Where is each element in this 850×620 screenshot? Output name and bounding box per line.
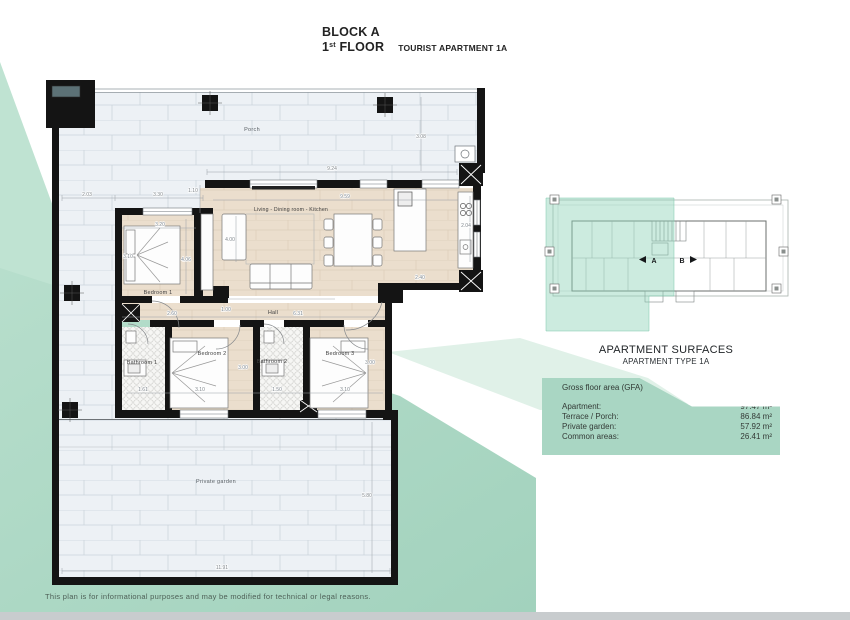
floor-ordinal-sup: st xyxy=(329,42,336,49)
page: 2.03 3.30 1.10 9.24 9.59 3.08 3.20 4.06 … xyxy=(0,0,850,620)
label-hall: Hall xyxy=(268,310,278,316)
porch-edge-line xyxy=(95,89,481,93)
dim-hall-right: 6.31 xyxy=(293,311,303,317)
dim-bed3-w: 3.10 xyxy=(340,387,350,393)
block-title: BLOCK A xyxy=(322,26,384,39)
dim-bath2-w: 1.50 xyxy=(272,387,282,393)
label-bedroom1: Bedroom 1 xyxy=(144,290,173,296)
dim-bed1-bed: 3.10 xyxy=(123,254,133,260)
floor-title: 1st FLOOR xyxy=(322,39,384,54)
label-porch: Porch xyxy=(244,127,260,133)
dim-bath1-w: 1.61 xyxy=(138,387,148,393)
dim-bed3-d: 3.00 xyxy=(365,360,375,366)
dim-garden-d: 5.80 xyxy=(362,493,372,499)
surface-row: Terrace / Porch: 86.84 m² xyxy=(562,412,772,422)
dim-bed2-d: 3.00 xyxy=(238,365,248,371)
stair-core-window xyxy=(52,86,80,97)
surface-label: Common areas: xyxy=(562,432,619,442)
surface-row: Private garden: 57.92 m² xyxy=(562,422,772,432)
dim-living-width: 9.59 xyxy=(340,194,350,200)
dim-bed1-depth: 4.06 xyxy=(181,257,191,263)
dining-table xyxy=(324,214,382,266)
kitchen-island xyxy=(394,189,426,251)
label-bedroom2: Bedroom 2 xyxy=(198,351,227,357)
surfaces-subtitle: APARTMENT TYPE 1A xyxy=(545,357,787,366)
wardrobe-bedroom1 xyxy=(201,214,213,290)
surface-label: Private garden: xyxy=(562,422,616,432)
apartment-title: TOURIST APARTMENT 1A xyxy=(398,43,507,53)
surface-label: Terrace / Porch: xyxy=(562,412,618,422)
dim-hall-door: 1.00 xyxy=(221,307,231,313)
dim-offset: 1.10 xyxy=(188,188,198,194)
bottom-strip xyxy=(0,612,850,620)
bed-bedroom3 xyxy=(310,338,368,408)
dim-garden-w: 11.91 xyxy=(216,565,228,571)
dim-porch-bed1: 3.30 xyxy=(153,192,163,198)
dim-bed2-w: 3.10 xyxy=(195,387,205,393)
label-bathroom2: Bathroom 2 xyxy=(257,359,287,365)
sofa xyxy=(250,264,312,289)
dim-kitchen-d: 2.04 xyxy=(461,223,471,229)
dim-porch-depth: 3.08 xyxy=(416,134,426,140)
label-bedroom3: Bedroom 3 xyxy=(326,351,355,357)
title-block: BLOCK A 1st FLOOR TOURIST APARTMENT 1A xyxy=(322,26,507,54)
surfaces-title: APARTMENT SURFACES xyxy=(545,344,787,356)
surface-value: 86.84 m² xyxy=(740,412,772,422)
surface-value: 57.92 m² xyxy=(740,422,772,432)
dim-sofa: 4.00 xyxy=(225,237,235,243)
key-plan-unit-a-label: A xyxy=(651,258,656,265)
label-living: Living - Dining room - Kitchen xyxy=(254,207,328,213)
plan-graphic: 2.03 3.30 1.10 9.24 9.59 3.08 3.20 4.06 … xyxy=(0,0,850,620)
disclaimer-text: This plan is for informational purposes … xyxy=(45,592,371,601)
key-plan: A B xyxy=(545,195,788,331)
gfa-header: Gross floor area (GFA) xyxy=(562,383,643,392)
dim-hall-left: 2.60 xyxy=(167,311,177,317)
tv-console xyxy=(252,186,315,190)
label-bathroom1: Bathroom 1 xyxy=(127,360,157,366)
surface-row: Common areas: 26.41 m² xyxy=(562,432,772,442)
dim-bed1-width: 3.20 xyxy=(155,222,165,228)
kitchen-counter xyxy=(458,192,473,268)
dim-porch-left: 2.03 xyxy=(82,192,92,198)
dim-kitchen-w: 2.40 xyxy=(415,275,425,281)
surface-label: Apartment: xyxy=(562,402,601,412)
dim-porch-width: 9.24 xyxy=(327,166,337,172)
key-plan-unit-b-label: B xyxy=(679,258,684,265)
surface-value: 26.41 m² xyxy=(740,432,772,442)
label-garden: Private garden xyxy=(196,479,236,485)
utility-box xyxy=(455,146,475,162)
surfaces-rows: Apartment: 97.47 m² Terrace / Porch: 86.… xyxy=(562,402,772,442)
